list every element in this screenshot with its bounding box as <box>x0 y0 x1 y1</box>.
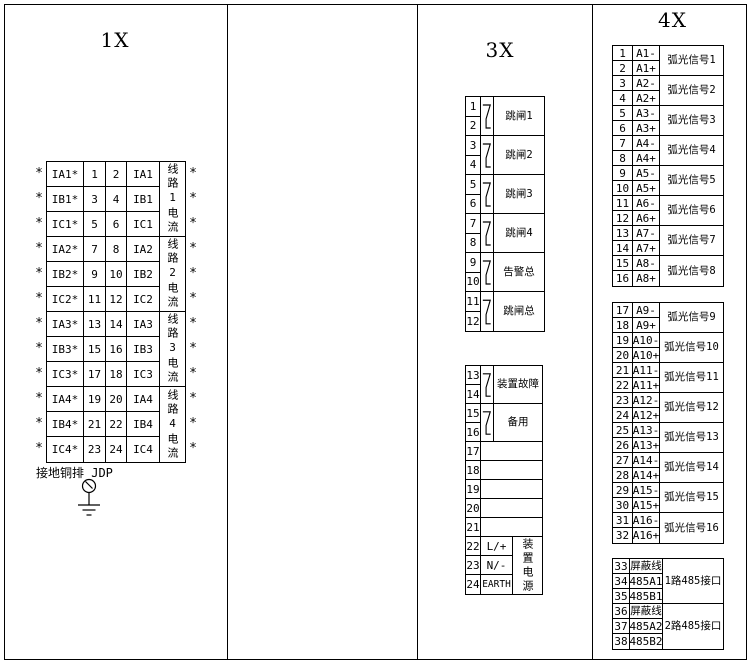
column-divider-2 <box>417 4 418 660</box>
terminal-number: 22 <box>106 412 127 437</box>
empty-cell <box>481 480 542 499</box>
terminal-label: IA4* <box>47 387 84 412</box>
terminal-number: 32 <box>613 528 633 543</box>
terminal-number: 38 <box>613 634 630 649</box>
terminal-label: 485B1 <box>630 589 663 604</box>
terminal-number: 18 <box>466 461 481 480</box>
arc-signal-label: 弧光信号8 <box>660 256 723 286</box>
terminal-label: 屏蔽线 <box>630 559 663 574</box>
terminal-label: IB2 <box>127 262 160 287</box>
star-mark: * <box>33 436 45 461</box>
terminal-label: IA2 <box>127 237 160 262</box>
terminal-label: IC3* <box>47 362 84 387</box>
empty-cell <box>481 461 542 480</box>
terminal-number: 6 <box>466 195 481 215</box>
terminal-number: 4 <box>106 187 127 212</box>
relay-output-label: 装置故障 <box>494 366 542 404</box>
terminal-number: 34 <box>613 574 630 589</box>
star-mark: * <box>187 411 199 436</box>
terminal-number: 20 <box>106 387 127 412</box>
terminal-label: A12- <box>633 393 660 408</box>
terminal-label: A15- <box>633 483 660 498</box>
column-divider-3 <box>592 4 593 660</box>
terminal-number: 21 <box>466 518 481 537</box>
terminal-label: A13- <box>633 423 660 438</box>
terminal-number: 29 <box>613 483 633 498</box>
group-label-line1-current: 线路1电流 <box>160 162 185 237</box>
terminal-label: IA4 <box>127 387 160 412</box>
relay-contact-icon <box>481 175 494 214</box>
terminal-number: 10 <box>613 181 633 196</box>
terminal-number: 17 <box>613 303 633 318</box>
terminal-label: 485A2 <box>630 619 663 634</box>
terminal-label: L/+ <box>481 537 513 556</box>
terminal-number: 16 <box>466 423 481 442</box>
relay-contact-icon <box>481 253 494 292</box>
arc-signal-label: 弧光信号13 <box>660 423 723 453</box>
star-mark: * <box>187 436 199 461</box>
terminal-number: 13 <box>466 366 481 385</box>
terminal-number: 24 <box>613 408 633 423</box>
ground-symbol-icon <box>74 477 104 525</box>
terminal-number: 13 <box>84 312 106 337</box>
relay-contact-icon <box>481 214 494 253</box>
wiring-diagram-page: 1X * * * * * * * * * * * * IA1* 1 2 IA1 … <box>0 0 756 667</box>
column-divider-1 <box>227 4 228 660</box>
terminal-number: 16 <box>106 337 127 362</box>
terminal-label: IB1 <box>127 187 160 212</box>
terminal-number: 21 <box>84 412 106 437</box>
terminal-number: 8 <box>106 237 127 262</box>
terminal-number: 11 <box>613 196 633 211</box>
arc-signal-label: 弧光信号1 <box>660 46 723 76</box>
terminal-number: 28 <box>613 468 633 483</box>
arc-signal-label: 弧光信号12 <box>660 393 723 423</box>
terminal-label: N/- <box>481 556 513 575</box>
relay-contact-icon <box>481 366 494 404</box>
empty-cell <box>481 499 542 518</box>
terminal-number: 5 <box>613 106 633 121</box>
star-column-left: * * * * * * * * * * * * <box>33 161 45 461</box>
star-mark: * <box>187 386 199 411</box>
terminal-number: 13 <box>613 226 633 241</box>
terminal-number: 8 <box>613 151 633 166</box>
terminal-label: A13+ <box>633 438 660 453</box>
terminal-number: 24 <box>466 575 481 594</box>
rs485-table: 33 屏蔽线 1路485接口 34 485A1 35 485B1 36 屏蔽线 … <box>612 558 724 650</box>
terminal-number: 10 <box>466 273 481 293</box>
star-mark: * <box>33 161 45 186</box>
terminal-number: 30 <box>613 498 633 513</box>
rs485-port-label: 2路485接口 <box>663 604 723 649</box>
arc-signal-label: 弧光信号2 <box>660 76 723 106</box>
star-mark: * <box>33 386 45 411</box>
terminal-number: 10 <box>106 262 127 287</box>
terminal-label: A16+ <box>633 528 660 543</box>
terminal-number: 14 <box>106 312 127 337</box>
terminal-label: IA3 <box>127 312 160 337</box>
arc-signal-label: 弧光信号3 <box>660 106 723 136</box>
arc-signal-label: 弧光信号6 <box>660 196 723 226</box>
terminal-label: A8+ <box>633 271 660 286</box>
star-mark: * <box>33 286 45 311</box>
arc-signal-label: 弧光信号14 <box>660 453 723 483</box>
terminal-number: 8 <box>466 234 481 254</box>
star-mark: * <box>187 186 199 211</box>
relay-output-label: 跳闸3 <box>494 175 544 214</box>
terminal-label: IC1 <box>127 212 160 237</box>
relay-output-label: 跳闸4 <box>494 214 544 253</box>
terminal-number: 19 <box>613 333 633 348</box>
terminal-number: 18 <box>613 318 633 333</box>
arc-signal-label: 弧光信号11 <box>660 363 723 393</box>
terminal-number: 37 <box>613 619 630 634</box>
relay-output-label: 跳闸1 <box>494 97 544 136</box>
relay-output-label: 备用 <box>494 404 542 442</box>
star-mark: * <box>33 261 45 286</box>
star-mark: * <box>187 311 199 336</box>
arc-signal-label: 弧光信号7 <box>660 226 723 256</box>
panel-4x-title: 4X <box>625 8 720 32</box>
terminal-number: 22 <box>466 537 481 556</box>
aux-terminal-table: 13 装置故障 14 15 备用 16 17 18 19 20 21 22 L/… <box>465 365 543 595</box>
group-label-line3-current: 线路3电流 <box>160 312 185 387</box>
terminal-label: A9- <box>633 303 660 318</box>
terminal-label: A16- <box>633 513 660 528</box>
terminal-label: A8- <box>633 256 660 271</box>
terminal-label: IB3 <box>127 337 160 362</box>
terminal-number: 14 <box>613 241 633 256</box>
terminal-label: IB1* <box>47 187 84 212</box>
terminal-number: 4 <box>613 91 633 106</box>
terminal-label: A4- <box>633 136 660 151</box>
relay-output-label: 跳闸2 <box>494 136 544 175</box>
terminal-label: IC2 <box>127 287 160 312</box>
terminal-label: A2- <box>633 76 660 91</box>
empty-cell <box>481 442 542 461</box>
terminal-label: IC2* <box>47 287 84 312</box>
terminal-label: IB2* <box>47 262 84 287</box>
terminal-number: 18 <box>106 362 127 387</box>
current-terminal-table: IA1* 1 2 IA1 线路1电流 IB1* 3 4 IB1 IC1* 5 6… <box>46 161 186 463</box>
terminal-label: A12+ <box>633 408 660 423</box>
star-mark: * <box>187 261 199 286</box>
terminal-label: IA3* <box>47 312 84 337</box>
terminal-number: 1 <box>613 46 633 61</box>
terminal-label: A4+ <box>633 151 660 166</box>
relay-output-label: 跳闸总 <box>494 292 544 331</box>
terminal-number: 20 <box>613 348 633 363</box>
terminal-number: 22 <box>613 378 633 393</box>
terminal-number: 36 <box>613 604 630 619</box>
terminal-label: A11- <box>633 363 660 378</box>
terminal-number: 12 <box>106 287 127 312</box>
terminal-number: 21 <box>613 363 633 378</box>
terminal-label: IA1 <box>127 162 160 187</box>
star-mark: * <box>33 411 45 436</box>
arc-signal-label: 弧光信号4 <box>660 136 723 166</box>
panel-1x-title: 1X <box>65 28 165 52</box>
terminal-label: A1+ <box>633 61 660 76</box>
terminal-label: IA1* <box>47 162 84 187</box>
arc-signal-table-1: 1 A1- 弧光信号1 2 A1+ 3 A2- 弧光信号2 4 A2+ 5 A3… <box>612 45 724 287</box>
star-mark: * <box>187 286 199 311</box>
terminal-label: 485A1 <box>630 574 663 589</box>
star-mark: * <box>33 211 45 236</box>
star-mark: * <box>187 161 199 186</box>
terminal-label: A3+ <box>633 121 660 136</box>
terminal-number: 1 <box>466 97 481 117</box>
terminal-number: 15 <box>84 337 106 362</box>
terminal-number: 15 <box>466 404 481 423</box>
terminal-number: 23 <box>613 393 633 408</box>
terminal-label: IB4* <box>47 412 84 437</box>
terminal-label: A10+ <box>633 348 660 363</box>
star-mark: * <box>33 361 45 386</box>
terminal-number: 19 <box>84 387 106 412</box>
terminal-label: A14+ <box>633 468 660 483</box>
group-label-device-power: 装置电源 <box>513 537 542 594</box>
terminal-number: 31 <box>613 513 633 528</box>
terminal-number: 12 <box>466 312 481 332</box>
terminal-number: 35 <box>613 589 630 604</box>
terminal-label: A7+ <box>633 241 660 256</box>
terminal-number: 7 <box>466 214 481 234</box>
terminal-number: 1 <box>84 162 106 187</box>
terminal-number: 33 <box>613 559 630 574</box>
terminal-number: 2 <box>466 117 481 137</box>
terminal-number: 9 <box>466 253 481 273</box>
arc-signal-label: 弧光信号9 <box>660 303 723 333</box>
terminal-number: 26 <box>613 438 633 453</box>
terminal-label: IA2* <box>47 237 84 262</box>
terminal-number: 14 <box>466 385 481 404</box>
terminal-label: IB3* <box>47 337 84 362</box>
relay-contact-icon <box>481 97 494 136</box>
terminal-number: 7 <box>84 237 106 262</box>
terminal-label: A6+ <box>633 211 660 226</box>
terminal-label: A9+ <box>633 318 660 333</box>
star-column-right: * * * * * * * * * * * * <box>187 161 199 461</box>
terminal-label: 485B2 <box>630 634 663 649</box>
terminal-label: IC1* <box>47 212 84 237</box>
terminal-number: 3 <box>466 136 481 156</box>
terminal-number: 5 <box>84 212 106 237</box>
terminal-label: IC3 <box>127 362 160 387</box>
terminal-label: IC4* <box>47 437 84 462</box>
star-mark: * <box>33 336 45 361</box>
group-label-line2-current: 线路2电流 <box>160 237 185 312</box>
terminal-label: EARTH <box>481 575 513 594</box>
terminal-number: 6 <box>106 212 127 237</box>
terminal-number: 12 <box>613 211 633 226</box>
terminal-label: IB4 <box>127 412 160 437</box>
star-mark: * <box>33 236 45 261</box>
terminal-number: 19 <box>466 480 481 499</box>
arc-signal-label: 弧光信号16 <box>660 513 723 543</box>
arc-signal-label: 弧光信号10 <box>660 333 723 363</box>
rs485-port-label: 1路485接口 <box>663 559 723 604</box>
empty-cell <box>481 518 542 537</box>
arc-signal-table-2: 17 A9- 弧光信号9 18 A9+ 19 A10- 弧光信号10 20 A1… <box>612 302 724 544</box>
star-mark: * <box>33 186 45 211</box>
terminal-label: IC4 <box>127 437 160 462</box>
arc-signal-label: 弧光信号15 <box>660 483 723 513</box>
terminal-number: 23 <box>84 437 106 462</box>
terminal-label: A5- <box>633 166 660 181</box>
terminal-number: 9 <box>613 166 633 181</box>
relay-contact-icon <box>481 136 494 175</box>
star-mark: * <box>187 211 199 236</box>
terminal-number: 15 <box>613 256 633 271</box>
terminal-number: 3 <box>84 187 106 212</box>
terminal-label: A14- <box>633 453 660 468</box>
terminal-label: A5+ <box>633 181 660 196</box>
relay-output-table: 1 跳闸1 2 3 跳闸2 4 5 跳闸3 6 7 跳闸4 8 9 告警总 1 <box>465 96 545 332</box>
terminal-number: 11 <box>466 292 481 312</box>
terminal-number: 16 <box>613 271 633 286</box>
terminal-number: 27 <box>613 453 633 468</box>
terminal-number: 24 <box>106 437 127 462</box>
arc-signal-label: 弧光信号5 <box>660 166 723 196</box>
relay-contact-icon <box>481 292 494 331</box>
terminal-number: 5 <box>466 175 481 195</box>
relay-contact-icon <box>481 404 494 442</box>
terminal-number: 2 <box>106 162 127 187</box>
star-mark: * <box>187 236 199 261</box>
terminal-number: 6 <box>613 121 633 136</box>
relay-output-label: 告警总 <box>494 253 544 292</box>
terminal-label: A3- <box>633 106 660 121</box>
star-mark: * <box>187 336 199 361</box>
terminal-number: 17 <box>466 442 481 461</box>
terminal-label: A7- <box>633 226 660 241</box>
terminal-number: 4 <box>466 156 481 176</box>
terminal-label: A1- <box>633 46 660 61</box>
terminal-label: A6- <box>633 196 660 211</box>
terminal-number: 11 <box>84 287 106 312</box>
terminal-number: 2 <box>613 61 633 76</box>
group-label-line4-current: 线路4电流 <box>160 387 185 462</box>
terminal-label: A10- <box>633 333 660 348</box>
panel-3x-title: 3X <box>455 38 545 62</box>
terminal-number: 25 <box>613 423 633 438</box>
terminal-number: 7 <box>613 136 633 151</box>
terminal-label: A15+ <box>633 498 660 513</box>
terminal-label: 屏蔽线 <box>630 604 663 619</box>
terminal-label: A2+ <box>633 91 660 106</box>
terminal-number: 9 <box>84 262 106 287</box>
star-mark: * <box>187 361 199 386</box>
terminal-number: 17 <box>84 362 106 387</box>
terminal-number: 23 <box>466 556 481 575</box>
terminal-number: 20 <box>466 499 481 518</box>
terminal-label: A11+ <box>633 378 660 393</box>
terminal-number: 3 <box>613 76 633 91</box>
star-mark: * <box>33 311 45 336</box>
